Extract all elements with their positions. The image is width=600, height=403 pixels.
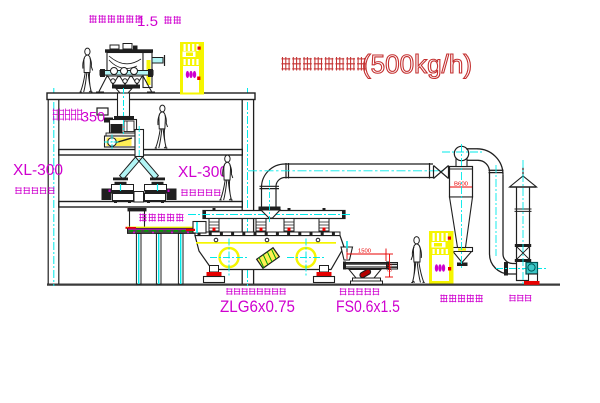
- svg-text:XL-300: XL-300: [178, 164, 228, 181]
- svg-text:345: 345: [388, 263, 394, 272]
- svg-text:1.5: 1.5: [137, 13, 158, 29]
- svg-text:FS0.6x1.5: FS0.6x1.5: [336, 298, 400, 316]
- svg-text:XL-300: XL-300: [13, 162, 63, 179]
- svg-text:350: 350: [81, 109, 105, 125]
- svg-text:ZLG6x0.75: ZLG6x0.75: [220, 298, 295, 316]
- svg-text:(500kg/h): (500kg/h): [362, 49, 472, 79]
- svg-text:1500: 1500: [358, 249, 371, 255]
